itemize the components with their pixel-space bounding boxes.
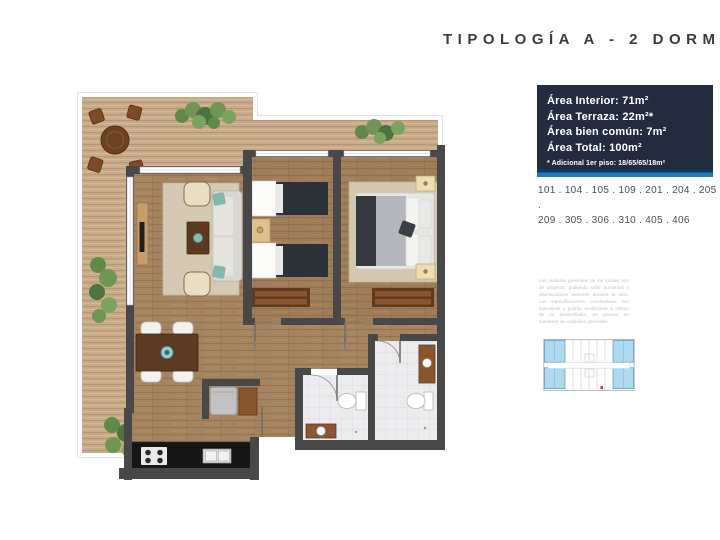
- fridge: [210, 387, 237, 415]
- unit-numbers-line1: 101 . 104 . 105 . 109 . 201 . 204 . 205 …: [538, 183, 720, 213]
- pillow-teal-top: [212, 192, 226, 206]
- bed-a-blanket: [276, 182, 328, 215]
- area-bien-comun: Área bien común: 7m²: [547, 125, 703, 141]
- armchair-bottom: [184, 272, 210, 296]
- page-title: TIPOLOGÍA A - 2 DORM: [443, 31, 720, 48]
- keyplan-marker: [601, 386, 604, 389]
- cooktop: [141, 447, 167, 465]
- area-total: Área Total: 100m²: [547, 141, 703, 157]
- area-footnote: * Adicional 1er piso: 18/65/65/18m²: [547, 160, 703, 167]
- building-key-plan: [543, 337, 635, 393]
- armchair-top: [184, 182, 210, 206]
- toilet-2: [407, 394, 425, 409]
- bed-b-blanket: [276, 244, 328, 277]
- unit-numbers: 101 . 104 . 105 . 109 . 201 . 204 . 205 …: [538, 183, 720, 228]
- unit-numbers-line2: 209 . 305 . 306 . 310 . 405 . 406: [538, 213, 720, 228]
- floor-plan: [0, 0, 720, 540]
- kitchen: [131, 442, 251, 469]
- typology-sheet: TIPOLOGÍA A - 2 DORM Área Interior: 71m²…: [0, 0, 720, 540]
- bed-a-pillow: [252, 181, 276, 216]
- area-terraza: Área Terraza: 22m²*: [547, 110, 703, 126]
- tv: [140, 222, 145, 252]
- area-interior: Área Interior: 71m²: [547, 94, 703, 110]
- blue-divider: [537, 169, 713, 177]
- toilet-1: [338, 394, 356, 409]
- pantry-cabinet: [239, 388, 257, 415]
- keyplan-corridor: [548, 363, 630, 369]
- area-info-panel: Área Interior: 71m² Área Terraza: 22m²* …: [537, 85, 713, 174]
- bed-b-pillow: [252, 243, 276, 278]
- fridge-nook: [210, 387, 257, 415]
- legal-disclaimer: Las medidas generales de los locales son…: [539, 278, 629, 326]
- pillow-teal-bottom: [212, 265, 226, 279]
